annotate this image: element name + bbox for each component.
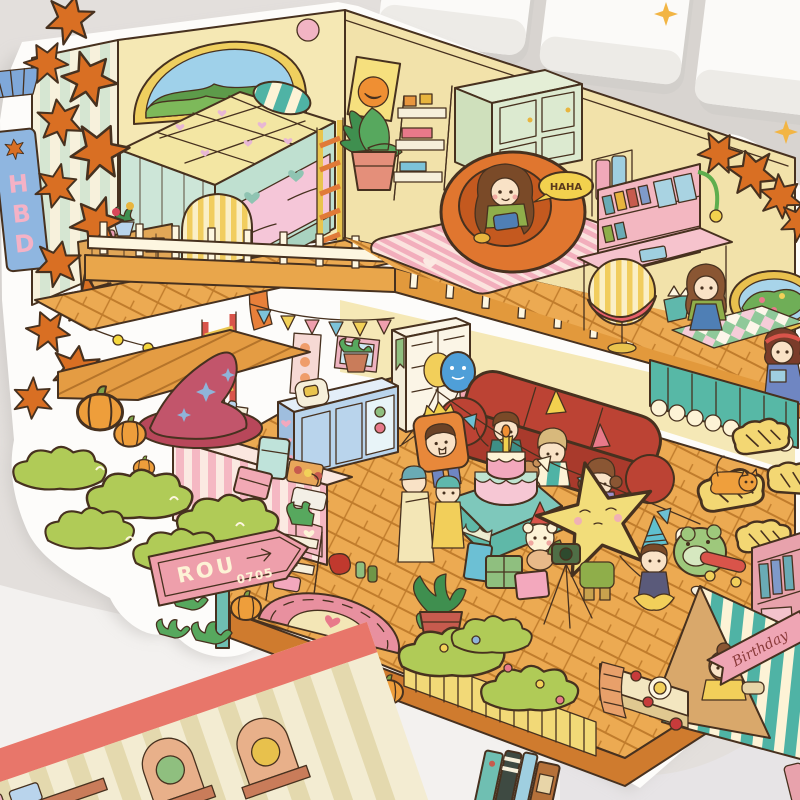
photo-of-sticker-on-desk: H B D [0,0,800,800]
sticker-scene: H B D [0,0,800,800]
egg-chair-with-girl [441,152,585,272]
green-bottle [356,562,365,578]
apple [643,697,653,707]
kneeling-girl [686,264,727,330]
haha-text: HAHA [550,182,582,193]
tent-pillow [742,682,764,694]
red-bag [329,554,350,575]
hbd-letter: B [11,199,32,229]
hbd-letter: D [13,229,36,259]
green-bottle [368,566,377,582]
apple [631,671,641,681]
hbd-letter: H [7,169,30,199]
cap-kid [432,476,464,548]
bread-maker [294,377,330,408]
frog-plush [674,525,726,576]
apple [670,718,682,730]
arch-mirror [182,194,252,268]
pumpkin-ghost-decal [297,19,319,41]
keyboard-key [692,0,800,131]
